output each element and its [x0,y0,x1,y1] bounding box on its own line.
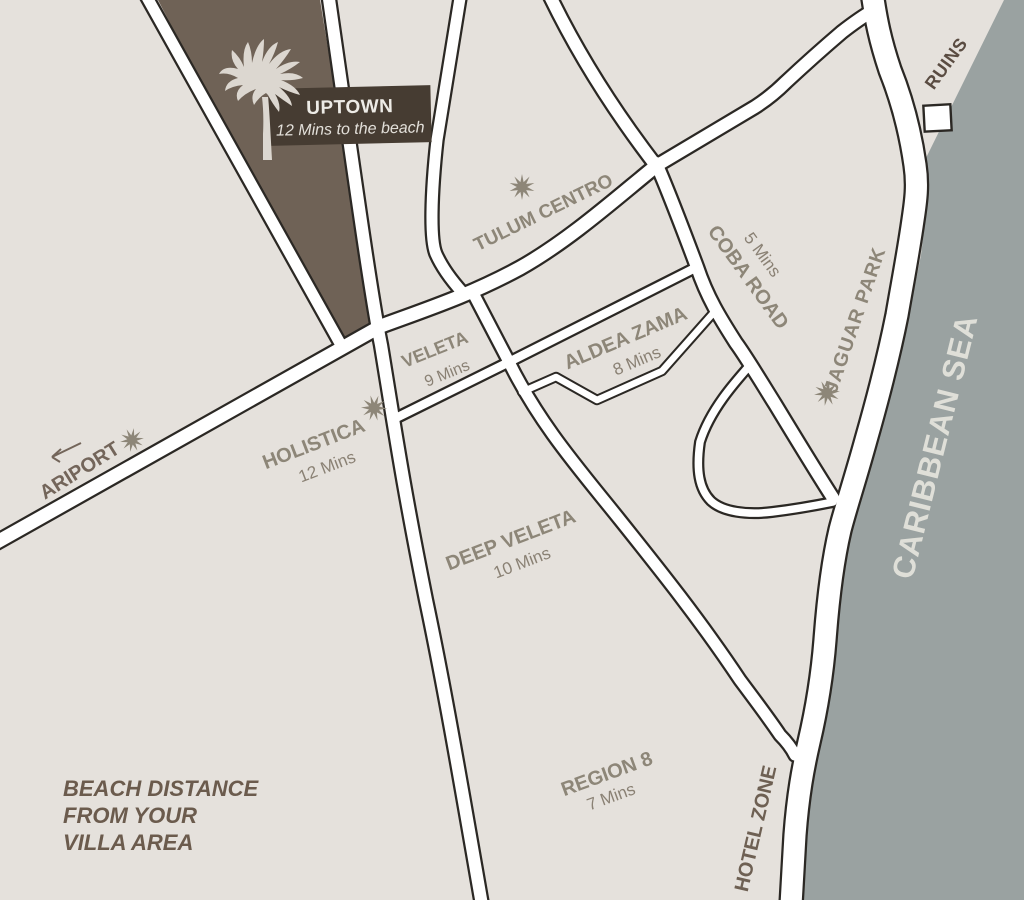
svg-text:UPTOWN: UPTOWN [306,96,394,119]
svg-text:BEACH DISTANCE: BEACH DISTANCE [63,776,259,801]
svg-text:12 Mins to the beach: 12 Mins to the beach [276,119,425,139]
svg-text:VILLA AREA: VILLA AREA [63,830,193,855]
svg-text:FROM YOUR: FROM YOUR [63,803,197,828]
